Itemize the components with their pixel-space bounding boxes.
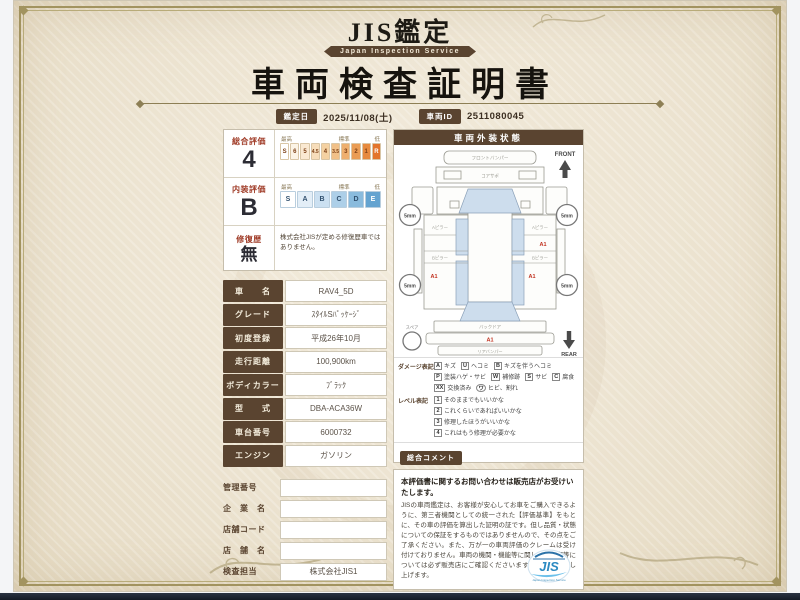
- damage-mark: A1: [430, 274, 437, 280]
- legend-item: 3修理したほうがいいかな: [434, 417, 510, 426]
- table-row: 車 名RAV4_5D: [223, 280, 387, 302]
- legend-text: 補修跡: [502, 372, 520, 381]
- legend-code: 2: [434, 407, 442, 415]
- dealer-value: [280, 500, 387, 518]
- table-row: 店舗コード: [223, 520, 387, 539]
- legend-code: 4: [434, 429, 442, 437]
- overall-scale: 最高 標準 低 S 6 5 4.5 4 3.5 3 2 1 R: [275, 130, 386, 177]
- dealer-value: 株式会社JIS1: [280, 563, 387, 581]
- scale-box: 3.5: [331, 143, 340, 160]
- spec-label: 型 式: [223, 398, 283, 420]
- legend-item: W補修跡: [491, 372, 520, 381]
- exterior-card-title: 車両外装状態: [394, 130, 583, 145]
- repair-history-grade: 無: [241, 246, 258, 263]
- scale-box: B: [314, 191, 330, 208]
- legend-item: XX交換済み: [434, 383, 471, 392]
- interior-evaluation-label: 内装評価: [232, 184, 266, 195]
- legend-code: A: [434, 362, 442, 370]
- legend-item: Bキズを伴うヘコミ: [494, 361, 552, 370]
- legend-code: C: [552, 373, 560, 381]
- legend-code: P: [434, 373, 442, 381]
- car-part-window-left-front: [456, 219, 468, 255]
- vehicle-id-value: 2511080045: [467, 111, 524, 122]
- table-row: 企 業 名: [223, 499, 387, 518]
- spec-label: 車台番号: [223, 421, 283, 443]
- damage-legend-items: Aキズ Uヘコミ Bキズを伴うヘコミ P塗装ハゲ・サビ W補修跡 Sサビ C腐食…: [434, 361, 579, 392]
- legend-text: これはもう修理が必要かな: [444, 428, 516, 437]
- scale-head-best: 最高: [281, 183, 292, 191]
- dealer-value: [280, 542, 387, 560]
- tread-front-right: 5mm: [561, 213, 573, 219]
- spec-value: 100,900km: [285, 351, 387, 373]
- interior-evaluation-key: 内装評価 B: [224, 178, 275, 225]
- spec-value: 6000732: [285, 421, 387, 443]
- vehicle-id: 車両ID 2511080045: [419, 109, 525, 124]
- vehicle-id-label: 車両ID: [419, 109, 462, 124]
- dealer-value: [280, 479, 387, 497]
- table-row: 店 舗 名: [223, 541, 387, 560]
- logo-text: JIS: [539, 559, 559, 574]
- scale-head-standard: 標準: [339, 135, 350, 143]
- legend-text: そのままでもいいかな: [444, 395, 504, 404]
- scale-box: 1: [362, 143, 371, 160]
- damage-mark: A1: [539, 242, 546, 248]
- car-part-rear-window: [460, 302, 520, 321]
- overall-grade: 4: [242, 148, 255, 172]
- scale-box: 4: [321, 143, 330, 160]
- table-row: 検査担当株式会社JIS1: [223, 562, 387, 581]
- car-part-windshield: [459, 189, 521, 213]
- scale-head-low: 低: [374, 183, 380, 191]
- car-part-mirror-left: [450, 201, 459, 208]
- logo-subtext: Japan Inspection Service: [532, 578, 566, 582]
- spec-value: ｽﾀｲﾙSﾊﾟｯｹｰｼﾞ: [285, 304, 387, 326]
- jis-logo: JIS Japan Inspection Service: [523, 546, 575, 584]
- overall-evaluation-row: 総合評価 4 最高 標準 低 S 6 5 4.5 4 3.5 3 2: [224, 130, 386, 178]
- diagram-legend: ダメージ表記 Aキズ Uヘコミ Bキズを伴うヘコミ P塗装ハゲ・サビ W補修跡 …: [394, 357, 583, 442]
- level-legend-items: 1そのままでもいいかな 2これくらいであればいいかな 3修理したほうがいいかな …: [434, 395, 579, 437]
- level-legend-title: レベル表記: [398, 395, 434, 437]
- car-part-window-left-rear: [456, 261, 468, 305]
- meta-badges: 鑑定日 2025/11/08(土) 車両ID 2511080045: [14, 109, 786, 124]
- scale-head-standard: 標準: [339, 183, 350, 191]
- scale-box: 2: [351, 143, 360, 160]
- scale-box: A: [297, 191, 313, 208]
- spec-label: 走行距離: [223, 351, 283, 373]
- overall-evaluation-key: 総合評価 4: [224, 130, 275, 177]
- scale-box: R: [372, 143, 381, 160]
- vehicle-spec-table: 車 名RAV4_5D グレードｽﾀｲﾙSﾊﾟｯｹｰｼﾞ 初度登録平成26年10月…: [223, 280, 387, 468]
- legend-text: サビ: [535, 372, 547, 381]
- damage-mark: A1: [528, 274, 535, 280]
- interior-evaluation-row: 内装評価 B 最高 標準 低 S A B C D E: [224, 178, 386, 226]
- table-row: 型 式DBA-ACA36W: [223, 398, 387, 420]
- scale-box: C: [331, 191, 347, 208]
- ornament-bottom-right: [614, 539, 764, 579]
- tread-rear-right: 5mm: [561, 283, 573, 289]
- core-support-label: コアサポ: [481, 173, 499, 180]
- car-part-roof: [468, 212, 512, 302]
- spec-value: ガソリン: [285, 445, 387, 467]
- spec-label: グレード: [223, 304, 283, 326]
- legend-code: S: [525, 373, 533, 381]
- brand-subtitle-ribbon: Japan Inspection Service: [324, 46, 476, 57]
- page-title: 車両検査証明書: [14, 57, 786, 106]
- scale-box: 6: [290, 143, 299, 160]
- spec-value: RAV4_5D: [285, 280, 387, 302]
- title-divider: [140, 103, 660, 104]
- overall-evaluation-label: 総合評価: [232, 136, 266, 147]
- repair-history-key: 修復歴 無: [224, 226, 275, 270]
- brand-title: JIS鑑定: [14, 12, 786, 49]
- legend-code: B: [494, 362, 502, 370]
- legend-item: C腐食: [552, 372, 574, 381]
- spare-tire: [403, 332, 421, 350]
- spec-label: エンジン: [223, 445, 283, 467]
- front-bumper-label: フロントバンパー: [472, 156, 509, 161]
- table-row: 管理番号: [223, 478, 387, 497]
- legend-text: 交換済み: [447, 383, 471, 392]
- scale-box: D: [348, 191, 364, 208]
- legend-text: キズを伴うヘコミ: [504, 361, 552, 370]
- dealer-label: 企 業 名: [223, 503, 280, 514]
- front-arrow-icon: [559, 160, 571, 178]
- legend-code: 3: [434, 418, 442, 426]
- legend-text: ヒビ、割れ: [488, 383, 518, 392]
- interior-scale-boxes: S A B C D E: [280, 191, 381, 208]
- spec-label: ボディカラー: [223, 374, 283, 396]
- inspection-date-label: 鑑定日: [276, 109, 318, 124]
- legend-item: P塗装ハゲ・サビ: [434, 372, 486, 381]
- inspection-date: 鑑定日 2025/11/08(土): [276, 109, 393, 124]
- legend-item: ワヒビ、割れ: [476, 383, 518, 392]
- headlight-right: [519, 171, 536, 179]
- legend-code: U: [461, 362, 469, 370]
- rear-direction-label: REAR: [561, 352, 577, 357]
- photo-edge-bar: [0, 593, 800, 600]
- damage-legend-title: ダメージ表記: [398, 361, 434, 392]
- front-direction-label: FRONT: [555, 152, 576, 158]
- car-diagram: フロントバンパー コアサポ Aピラー Aピラー Bピラー Bピラー バックドア …: [394, 145, 583, 357]
- disclaimer-card: 本評価書に関するお問い合わせは販売店がお受けいたします。 JISの車両鑑定は、お…: [393, 469, 584, 590]
- repair-history-label: 修復歴: [236, 234, 262, 245]
- dealer-value: [280, 521, 387, 539]
- car-part-window-right-rear: [512, 261, 524, 305]
- spec-label: 車 名: [223, 280, 283, 302]
- legend-code: ワ: [476, 384, 486, 392]
- scale-box: 3: [341, 143, 350, 160]
- overall-comment-label: 総合コメント: [400, 451, 462, 465]
- repair-history-row: 修復歴 無 株式会社JISが定める修復歴車ではありません。: [224, 226, 386, 270]
- corner-ornament: [772, 577, 782, 587]
- scale-head-low: 低: [374, 135, 380, 143]
- legend-item: 1そのままでもいいかな: [434, 395, 504, 404]
- inspection-date-value: 2025/11/08(土): [323, 110, 392, 124]
- scale-headers: 最高 標準 低: [280, 135, 381, 143]
- legend-text: 塗装ハゲ・サビ: [444, 372, 486, 381]
- overall-scale-boxes: S 6 5 4.5 4 3.5 3 2 1 R: [280, 143, 381, 160]
- table-row: 走行距離100,900km: [223, 351, 387, 373]
- table-row: グレードｽﾀｲﾙSﾊﾟｯｹｰｼﾞ: [223, 304, 387, 326]
- spec-value: 平成26年10月: [285, 327, 387, 349]
- legend-code: W: [491, 373, 500, 381]
- legend-item: 2これくらいであればいいかな: [434, 406, 522, 415]
- legend-item: Aキズ: [434, 361, 456, 370]
- legend-text: 腐食: [562, 372, 574, 381]
- level-legend: レベル表記 1そのままでもいいかな 2これくらいであればいいかな 3修理したほう…: [398, 395, 579, 437]
- dealer-table: 管理番号 企 業 名 店舗コード 店 舗 名 検査担当株式会社JIS1: [223, 478, 387, 583]
- exterior-condition-card: 車両外装状態: [393, 129, 584, 463]
- corner-ornament: [19, 577, 29, 587]
- interior-scale: 最高 標準 低 S A B C D E: [275, 178, 386, 225]
- legend-item: 4これはもう修理が必要かな: [434, 428, 516, 437]
- tread-rear-left: 5mm: [404, 283, 416, 289]
- legend-item: Uヘコミ: [461, 361, 489, 370]
- scale-box: E: [365, 191, 381, 208]
- legend-item: Sサビ: [525, 372, 547, 381]
- interior-grade: B: [240, 196, 257, 220]
- legend-text: 修理したほうがいいかな: [444, 417, 510, 426]
- rear-arrow-icon: [563, 331, 575, 349]
- table-row: 車台番号6000732: [223, 421, 387, 443]
- disclaimer-title: 本評価書に関するお問い合わせは販売店がお受けいたします。: [401, 476, 576, 498]
- headlight-left: [444, 171, 461, 179]
- repair-history-note: 株式会社JISが定める修復歴車ではありません。: [275, 226, 386, 270]
- table-row: 初度登録平成26年10月: [223, 327, 387, 349]
- dealer-label: 管理番号: [223, 482, 280, 493]
- dealer-label: 店舗コード: [223, 524, 280, 535]
- dealer-label: 検査担当: [223, 566, 280, 577]
- dealer-label: 店 舗 名: [223, 545, 280, 556]
- legend-code: 1: [434, 396, 442, 404]
- legend-code: XX: [434, 384, 445, 392]
- car-part-window-right-front: [512, 219, 524, 255]
- legend-text: これくらいであればいいかな: [444, 406, 522, 415]
- evaluation-card: 総合評価 4 最高 標準 低 S 6 5 4.5 4 3.5 3 2: [223, 129, 387, 271]
- car-part-mirror-right: [521, 201, 530, 208]
- scale-headers: 最高 標準 低: [280, 183, 381, 191]
- scale-box: S: [280, 191, 296, 208]
- spec-label: 初度登録: [223, 327, 283, 349]
- certificate: JIS鑑定 Japan Inspection Service 車両検査証明書 鑑…: [13, 0, 787, 592]
- table-row: ボディカラーﾌﾞﾗｯｸ: [223, 374, 387, 396]
- legend-text: キズ: [444, 361, 456, 370]
- spec-value: DBA-ACA36W: [285, 398, 387, 420]
- scale-box: 4.5: [311, 143, 320, 160]
- tread-front-left: 5mm: [404, 213, 416, 219]
- scale-box: S: [280, 143, 289, 160]
- legend-text: ヘコミ: [471, 361, 489, 370]
- scale-box: 5: [300, 143, 309, 160]
- spare-label: スペア: [406, 325, 419, 331]
- spec-value: ﾌﾞﾗｯｸ: [285, 374, 387, 396]
- scale-head-best: 最高: [281, 135, 292, 143]
- table-row: エンジンガソリン: [223, 445, 387, 467]
- damage-mark: A1: [486, 338, 493, 344]
- damage-legend: ダメージ表記 Aキズ Uヘコミ Bキズを伴うヘコミ P塗装ハゲ・サビ W補修跡 …: [398, 361, 579, 392]
